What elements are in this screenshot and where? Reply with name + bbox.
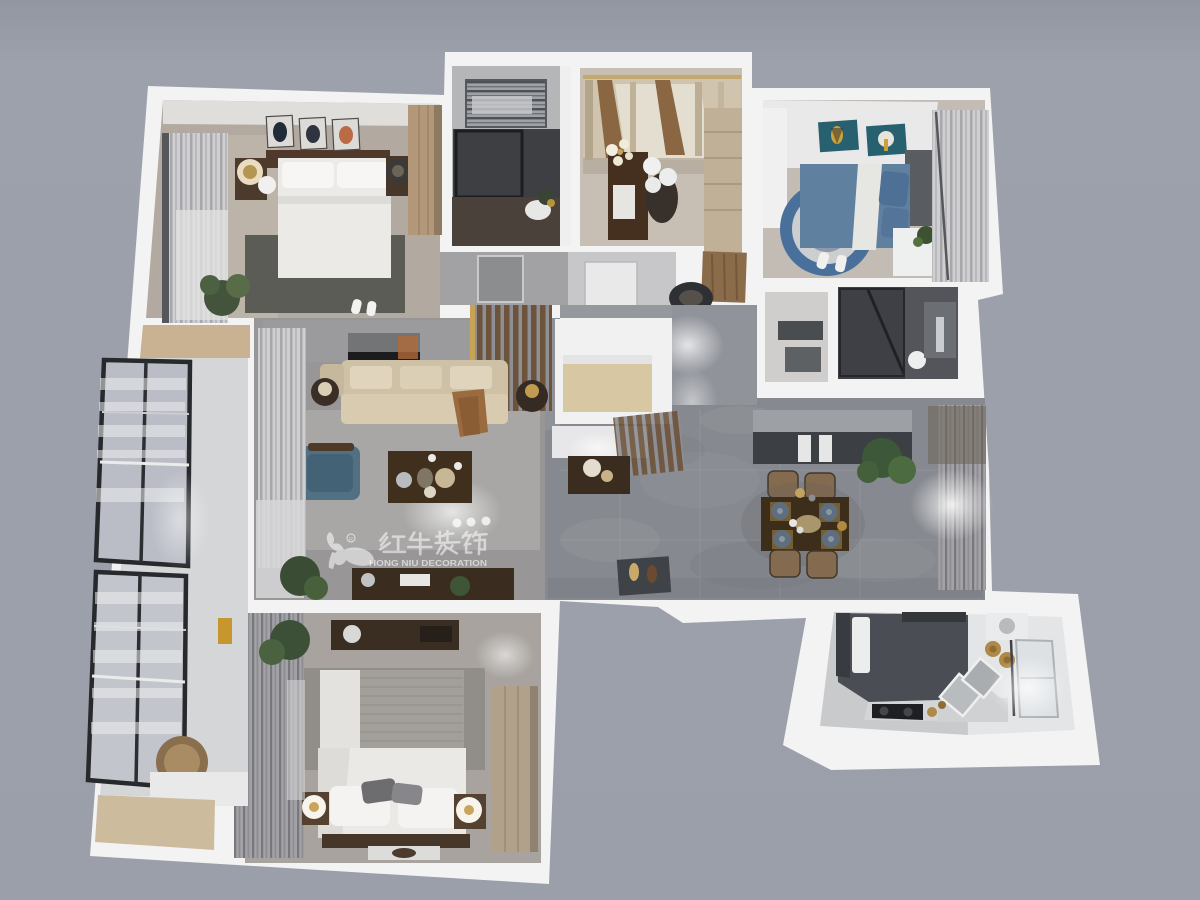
svg-text:HONG NIU DECORATION: HONG NIU DECORATION: [369, 559, 487, 568]
svg-text:R: R: [349, 537, 353, 543]
